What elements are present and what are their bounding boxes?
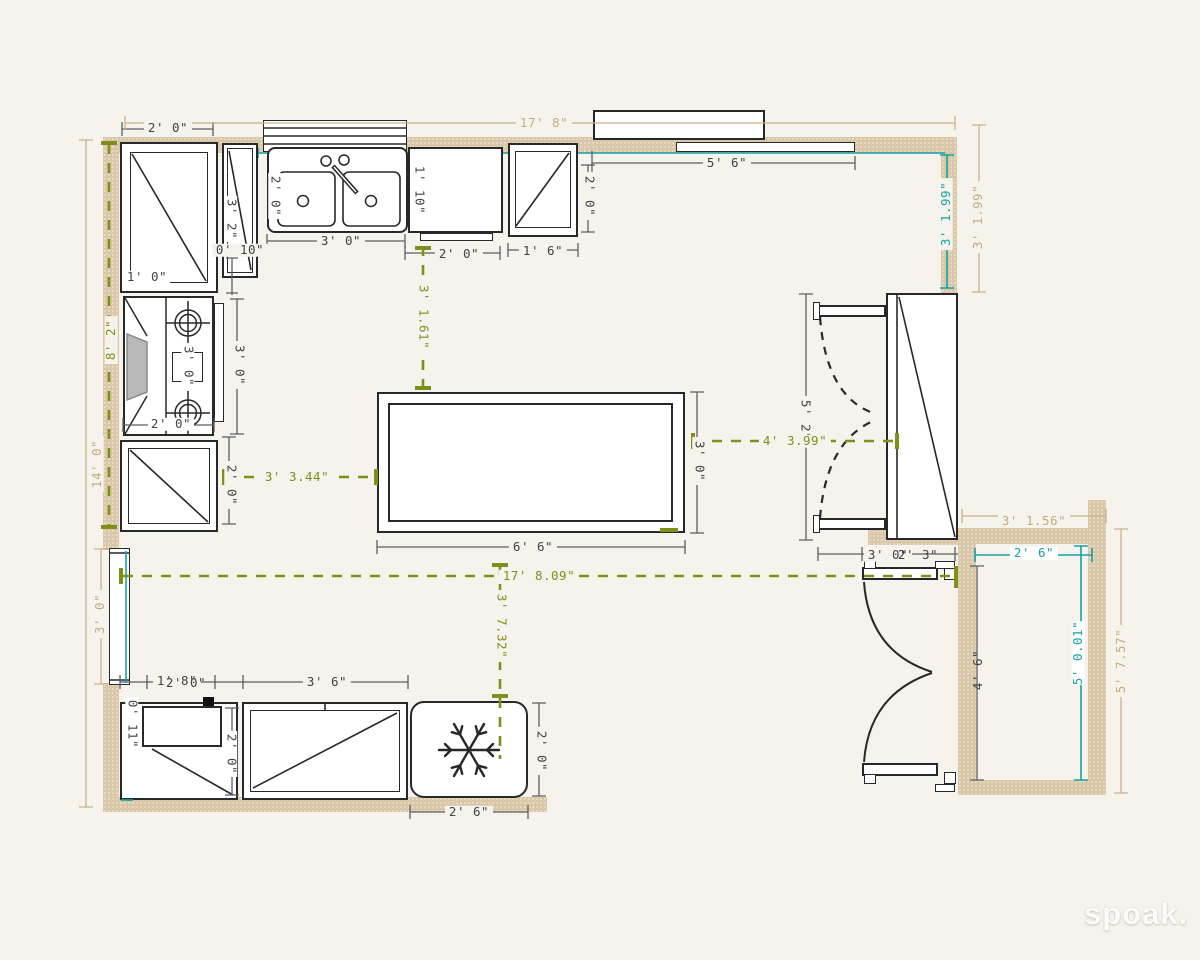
dim-label: 2' 0" xyxy=(225,461,238,509)
freezer[interactable] xyxy=(410,701,528,798)
closet-wall-top xyxy=(958,528,1106,544)
pantry-cabinet[interactable] xyxy=(886,293,958,540)
dim-label-green: 17' 8.09" xyxy=(499,570,579,583)
closet-wall-bottom xyxy=(958,780,1106,795)
cabinet-bottom-corner-box xyxy=(142,706,222,747)
door-cap-top xyxy=(813,302,820,320)
dim-label-tan: 3' 1.56" xyxy=(998,515,1070,528)
dim-label: 1' 0" xyxy=(124,271,170,284)
dim-label: 2' 0" xyxy=(166,677,206,690)
dim-label: 3' 0" xyxy=(317,235,365,248)
cabinet-knob xyxy=(203,697,214,706)
dim-label-teal: 3' 1.99" xyxy=(940,178,953,250)
dim-label: 2' 0" xyxy=(435,248,483,261)
dim-label-green: 3' 3.44" xyxy=(261,471,333,484)
kitchen-island-inner xyxy=(388,403,673,522)
cabinet-one-six-inner xyxy=(515,151,571,228)
closet-wall-right xyxy=(1088,500,1106,795)
closet-jamb-bottom-b xyxy=(944,772,956,784)
dim-label: 2' 0" xyxy=(583,172,596,220)
dim-label: 3' 0" xyxy=(182,343,195,389)
dim-label: 1' 10" xyxy=(413,163,426,217)
kitchen-sink[interactable] xyxy=(267,147,408,233)
door-cap-bottom xyxy=(813,515,820,533)
closet-jamb-top-b xyxy=(944,568,956,580)
top-wall-window[interactable] xyxy=(676,142,855,152)
floor-plan-canvas: 2' 0" 1' 0" 3' 2" 0' 10" 3' 0" 2' 0" 1' … xyxy=(0,0,1200,960)
dim-label-tan: 5' 7.57" xyxy=(1115,625,1128,697)
window-left[interactable] xyxy=(109,548,130,685)
closet-door-arcs xyxy=(864,582,932,762)
dim-label: 1' 6" xyxy=(519,245,567,258)
cabinet-top-left-inner xyxy=(130,152,208,283)
dim-label-tan: 3' 1.99" xyxy=(972,181,985,253)
dim-label: 2' 0" xyxy=(144,122,192,135)
dim-label: 0' 10" xyxy=(212,244,268,257)
dim-label: 0' 11" xyxy=(126,697,139,751)
dishwasher-tray xyxy=(420,233,493,241)
dim-label-teal: 5' 0.01" xyxy=(1072,621,1085,685)
door-leaf-bottom[interactable] xyxy=(818,518,886,530)
dim-label-tan: 3' 0" xyxy=(94,590,107,638)
door-swing-arcs xyxy=(820,317,873,518)
dim-label-teal: 2' 6" xyxy=(1010,547,1058,560)
top-wall-shelf[interactable] xyxy=(593,110,765,140)
dim-label: 2' 3" xyxy=(898,549,938,562)
dim-label: 2' 0" xyxy=(269,173,282,219)
dim-label: 5' 6" xyxy=(703,157,751,170)
dim-label: 6' 6" xyxy=(509,541,557,554)
dim-label: 2' 6" xyxy=(445,806,493,819)
closet-door-hinge-bottom xyxy=(864,774,876,784)
dim-label-green: 3' 7.32" xyxy=(495,590,508,662)
cabinet-lower-left-inner xyxy=(128,448,210,524)
dim-label-tan: 17' 8" xyxy=(516,117,572,130)
closet-jamb-bottom-a xyxy=(935,784,955,792)
dim-label-green: 8' 2" xyxy=(105,316,118,364)
dim-label: 4' 6" xyxy=(972,650,985,690)
spoak-watermark: spoak. xyxy=(1084,896,1188,932)
dim-label: 3' 6" xyxy=(303,676,351,689)
dim-label: 2' 0" xyxy=(148,418,194,431)
dim-label: 3' 2" xyxy=(225,196,238,242)
dim-label-tan: 14' 0" xyxy=(91,436,104,492)
cabinet-bottom-wide-inner xyxy=(250,710,400,792)
dim-label: 2' 0" xyxy=(535,727,548,775)
stove-counter-strip xyxy=(214,303,224,422)
dim-label-green: 3' 1.61" xyxy=(417,281,430,353)
dim-label: 3' 0" xyxy=(693,437,706,485)
door-leaf-top[interactable] xyxy=(818,305,886,317)
dim-label-green: 4' 3.99" xyxy=(759,435,831,448)
wall-left-lower xyxy=(103,683,119,810)
dim-label: 2' 0" xyxy=(225,731,238,777)
dim-label: 3' 0" xyxy=(233,341,246,389)
